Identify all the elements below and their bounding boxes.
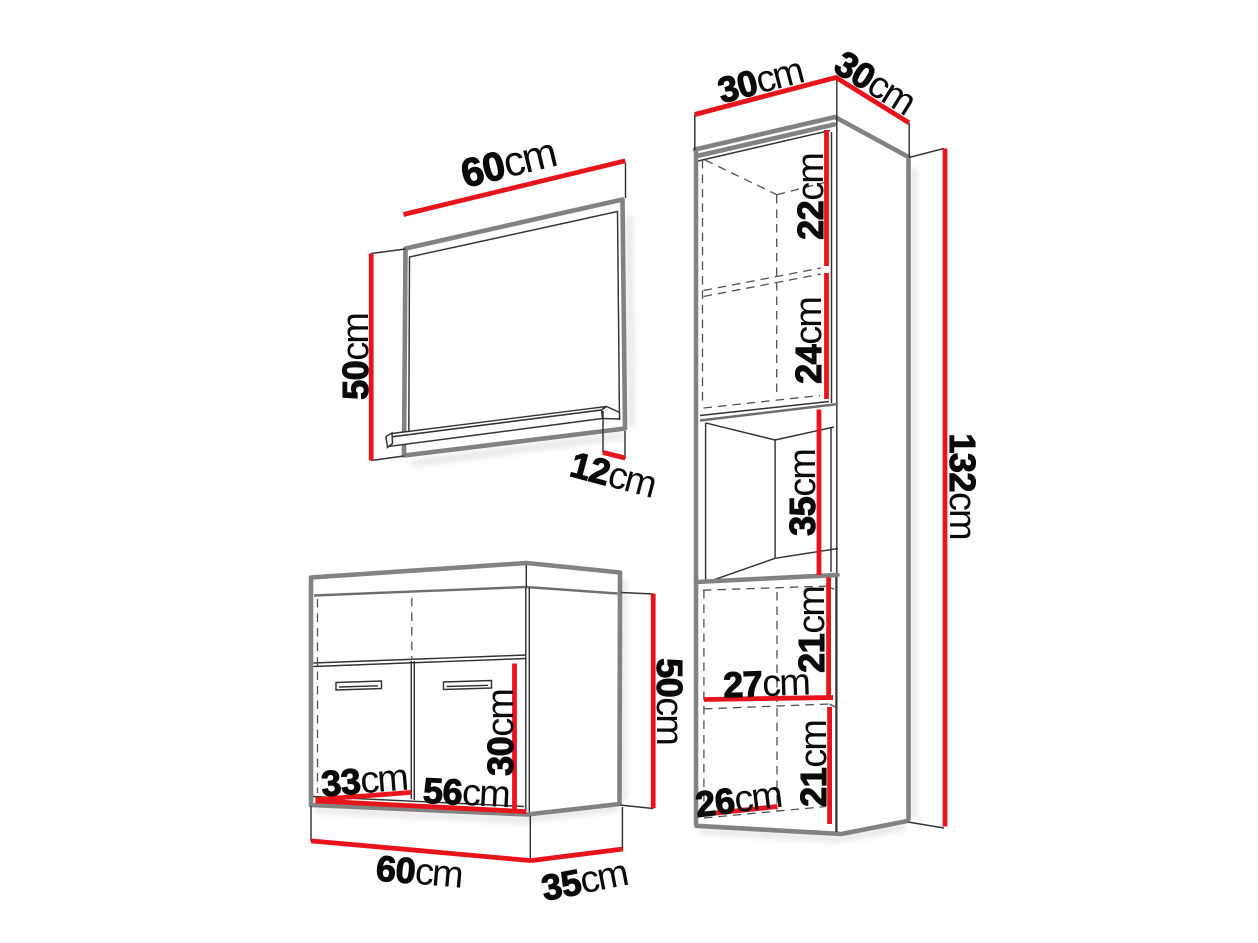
svg-text:30cm: 30cm <box>480 690 522 776</box>
svg-text:35cm: 35cm <box>782 450 824 536</box>
svg-text:24cm: 24cm <box>788 298 830 384</box>
svg-text:27cm: 27cm <box>722 662 809 707</box>
svg-text:56cm: 56cm <box>422 770 510 816</box>
svg-text:21cm: 21cm <box>791 587 833 673</box>
svg-text:50cm: 50cm <box>648 658 690 744</box>
svg-text:132cm: 132cm <box>941 433 983 539</box>
svg-text:60cm: 60cm <box>374 847 463 896</box>
svg-text:22cm: 22cm <box>790 154 832 240</box>
svg-text:50cm: 50cm <box>335 314 377 400</box>
svg-text:21cm: 21cm <box>793 721 835 807</box>
svg-text:33cm: 33cm <box>320 757 409 806</box>
